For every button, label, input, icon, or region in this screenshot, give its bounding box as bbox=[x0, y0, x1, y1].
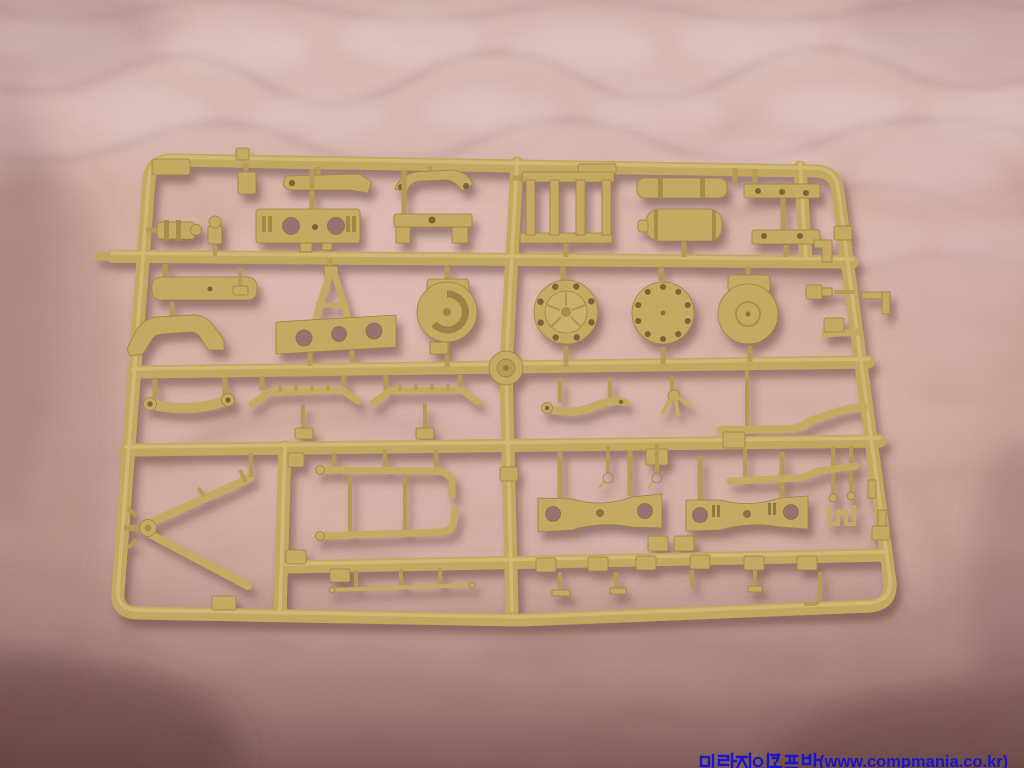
svg-text:(www.compmania.co.kr): (www.compmania.co.kr) bbox=[819, 753, 1008, 768]
